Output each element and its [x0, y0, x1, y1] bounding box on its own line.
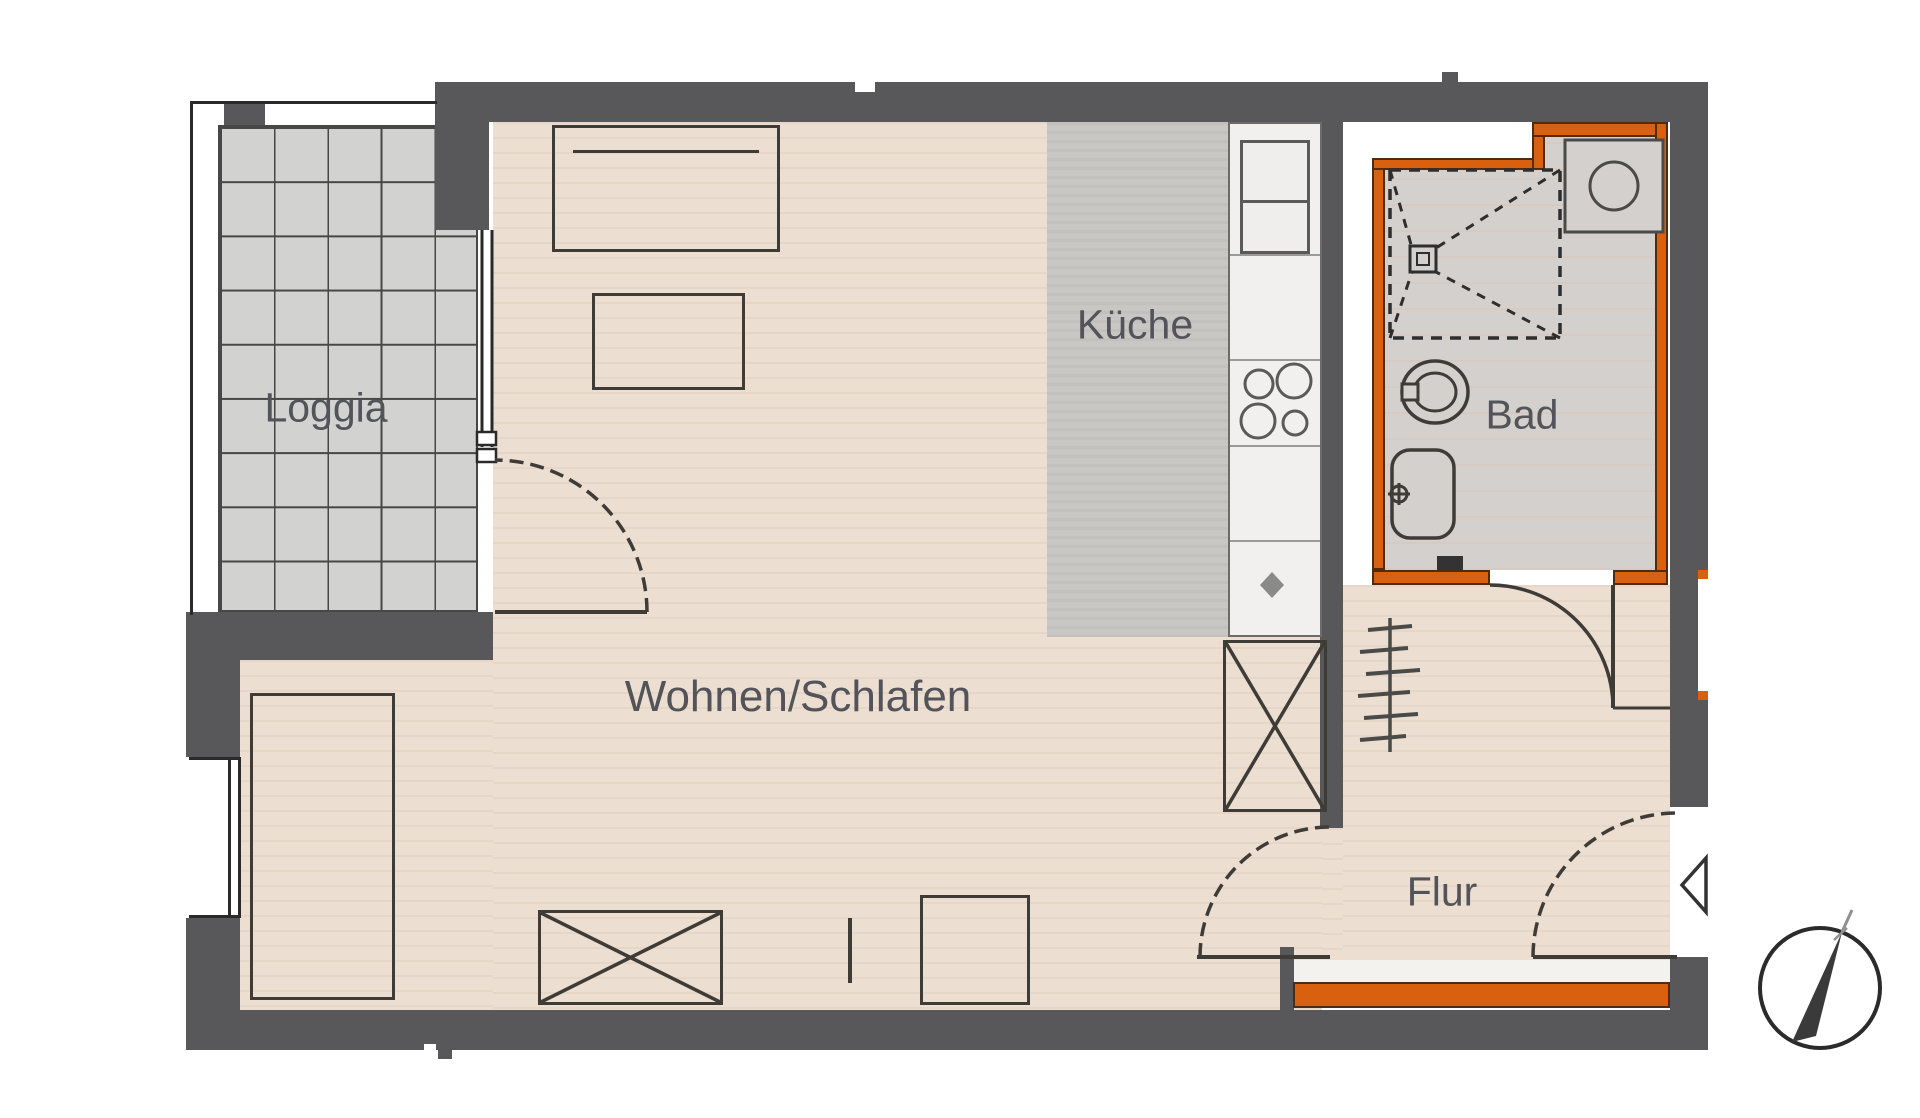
entrance-marker-icon [1682, 858, 1706, 912]
shower [1390, 170, 1560, 338]
bath-door [1437, 556, 1670, 708]
coat-rack-icon [1358, 618, 1420, 752]
room-label-living: Wohnen/Schlafen [625, 672, 972, 722]
balcony-door [495, 460, 647, 612]
room-label-kitchen: Küche [1077, 302, 1193, 349]
stove-icon [1241, 364, 1311, 438]
loggia-glazing [477, 230, 496, 462]
toilet-icon [1402, 361, 1468, 423]
north-arrow-icon [1760, 910, 1880, 1048]
room-label-flur: Flur [1407, 869, 1478, 916]
entrance-door [1533, 813, 1677, 957]
dishwasher-icon [1260, 572, 1284, 598]
plan-linework [0, 0, 1920, 1118]
washing-machine-icon [1565, 140, 1663, 232]
sink-icon [1388, 450, 1454, 538]
door-living-to-flur [1197, 827, 1330, 957]
room-label-bath: Bad [1486, 392, 1559, 439]
room-label-loggia: Loggia [264, 385, 387, 432]
